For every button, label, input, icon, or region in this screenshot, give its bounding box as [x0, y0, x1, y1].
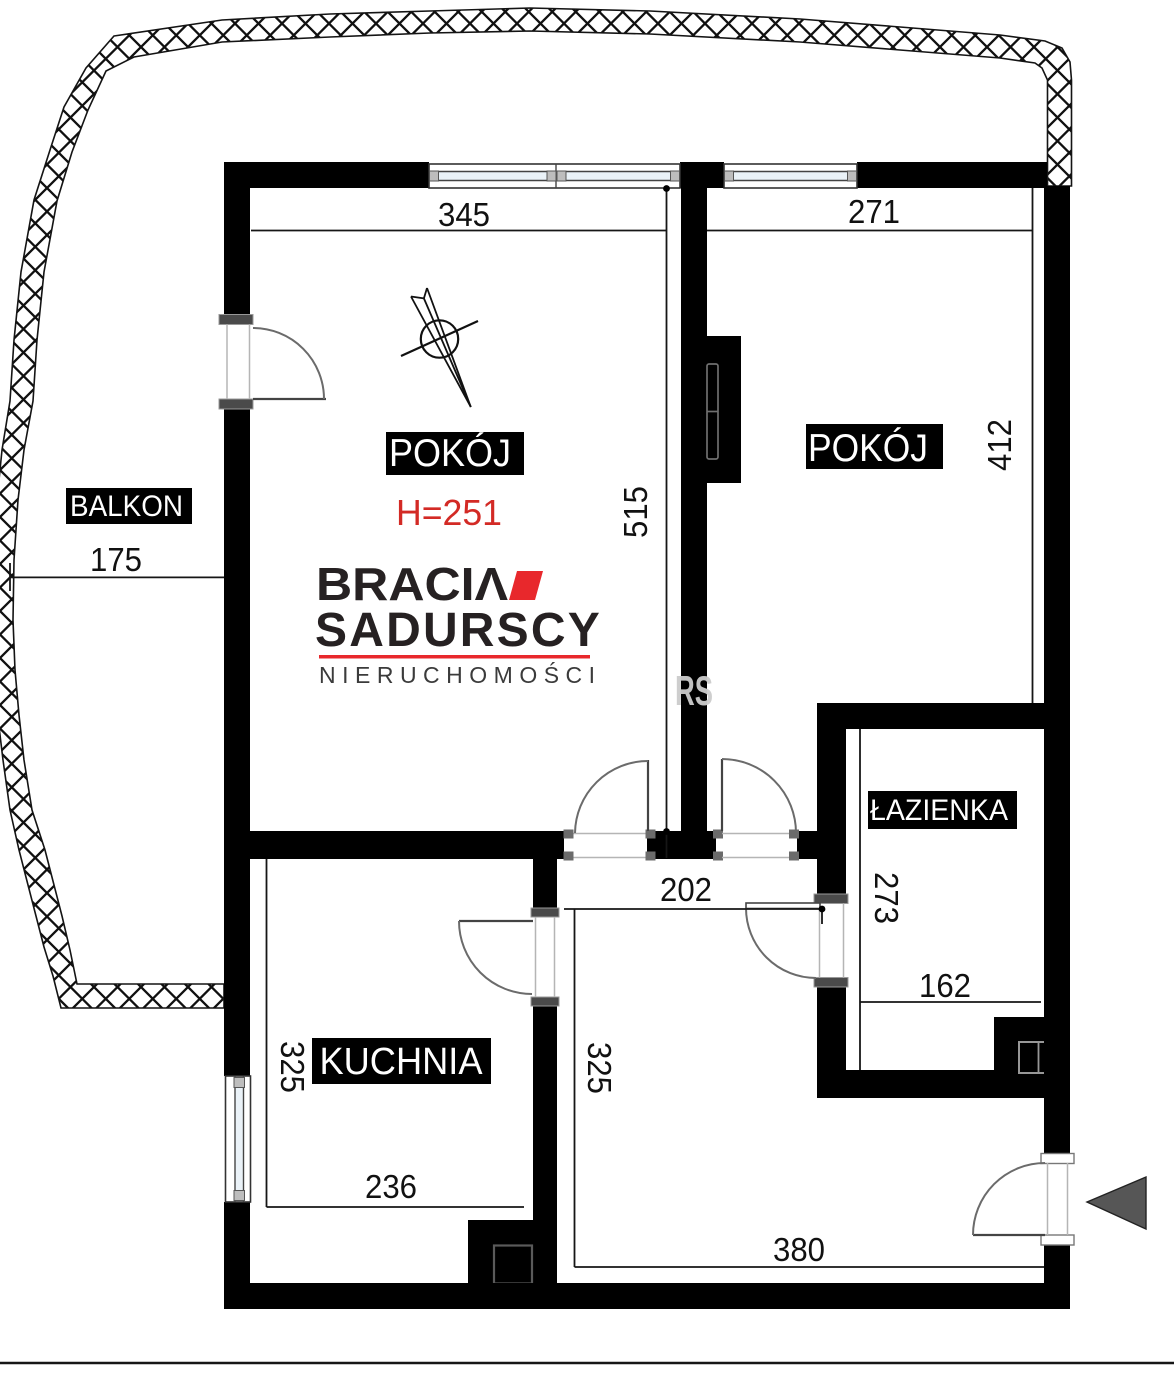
svg-text:BALKON: BALKON [70, 490, 183, 523]
svg-text:236: 236 [365, 1168, 417, 1205]
svg-text:380: 380 [773, 1231, 825, 1268]
svg-text:RS: RS [675, 667, 713, 714]
svg-text:202: 202 [660, 871, 712, 908]
svg-text:325: 325 [274, 1041, 311, 1093]
svg-text:ŁAZIENKA: ŁAZIENKA [870, 794, 1008, 827]
svg-text:271: 271 [848, 193, 900, 230]
svg-text:325: 325 [581, 1042, 618, 1094]
svg-text:NIERUCHOMOŚCI: NIERUCHOMOŚCI [319, 661, 602, 688]
svg-text:273: 273 [868, 872, 905, 924]
svg-text:H=251: H=251 [396, 492, 502, 533]
svg-text:POKÓJ: POKÓJ [808, 427, 928, 470]
svg-text:KUCHNIA: KUCHNIA [320, 1041, 484, 1083]
svg-text:POKÓJ: POKÓJ [389, 432, 511, 475]
svg-text:BRACIΛ: BRACIΛ [316, 558, 508, 610]
svg-text:515: 515 [617, 486, 654, 538]
svg-text:SADURSCY: SADURSCY [315, 604, 602, 657]
svg-text:175: 175 [90, 541, 142, 578]
svg-text:412: 412 [981, 419, 1018, 471]
svg-text:345: 345 [438, 196, 490, 233]
svg-text:162: 162 [919, 967, 971, 1004]
